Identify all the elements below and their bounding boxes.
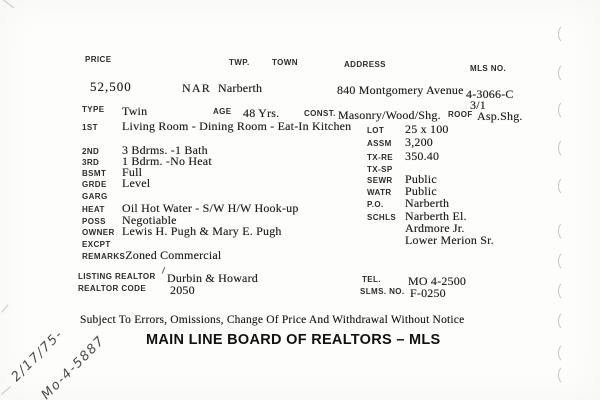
field-row-schls-3: Lower Merion Sr.	[367, 231, 494, 249]
mls-listing-card: PRICE TWP. TOWN ADDRESS MLS NO. 52,500 N…	[0, 0, 600, 400]
field-label: REMARKS	[82, 252, 125, 261]
address-value: 840 Montgomery Avenue	[337, 83, 464, 98]
roof-label: ROOF	[448, 110, 473, 119]
field-value: Living Room - Dining Room - Eat-In Kitch…	[122, 119, 351, 133]
twp-value: NAR	[182, 81, 211, 96]
punch-hole	[558, 24, 574, 44]
realtor-code-label: REALTOR CODE	[78, 284, 146, 293]
punch-hole	[558, 138, 574, 158]
field-value: Lewis H. Pugh & Mary E. Pugh	[122, 224, 282, 238]
roof-value: Asp.Shg.	[477, 109, 523, 124]
punch-hole	[558, 281, 574, 301]
realtor-code-value: 2050	[170, 283, 195, 298]
town-value: Narberth	[218, 81, 262, 96]
field-value: Zoned Commercial	[125, 248, 221, 262]
board-title: MAIN LINE BOARD OF REALTORS – MLS	[146, 332, 441, 348]
age-label: AGE	[213, 107, 232, 116]
punch-hole	[558, 311, 574, 331]
address-label: ADDRESS	[344, 60, 386, 69]
listing-realtor-label: LISTING REALTOR	[78, 272, 156, 281]
disclaimer-text: Subject To Errors, Omissions, Change Of …	[80, 314, 464, 326]
punch-hole	[558, 251, 574, 271]
punch-hole	[558, 365, 574, 385]
twp-label: TWP.	[229, 58, 250, 67]
town-label: TOWN	[272, 58, 298, 67]
slms-no-label: SLMS. NO.	[360, 287, 405, 296]
field-row-remarks: REMARKSZoned Commercial	[82, 246, 221, 264]
stray-pen-mark	[162, 267, 166, 274]
punch-hole	[558, 221, 574, 241]
field-row-1st: 1STLiving Room - Dining Room - Eat-In Ki…	[82, 117, 351, 135]
mls-no-label: MLS NO.	[470, 64, 506, 73]
slms-no-value: F-0250	[410, 286, 446, 301]
price-value: 52,500	[90, 79, 132, 95]
type-label: TYPE	[82, 105, 105, 114]
punch-hole	[558, 63, 574, 83]
price-label: PRICE	[85, 55, 111, 64]
field-value: Lower Merion Sr.	[405, 233, 494, 247]
scan-edge-mark	[1, 386, 11, 394]
punch-hole	[558, 343, 574, 363]
field-label: 1ST	[82, 123, 122, 132]
scan-edge-mark	[1, 304, 8, 312]
tel-label: TEL.	[362, 275, 381, 284]
punch-hole	[558, 176, 574, 196]
field-value: Level	[122, 176, 150, 190]
scan-edge-mark	[2, 0, 14, 8]
punch-hole	[558, 100, 574, 120]
field-value: 350.40	[405, 149, 439, 163]
